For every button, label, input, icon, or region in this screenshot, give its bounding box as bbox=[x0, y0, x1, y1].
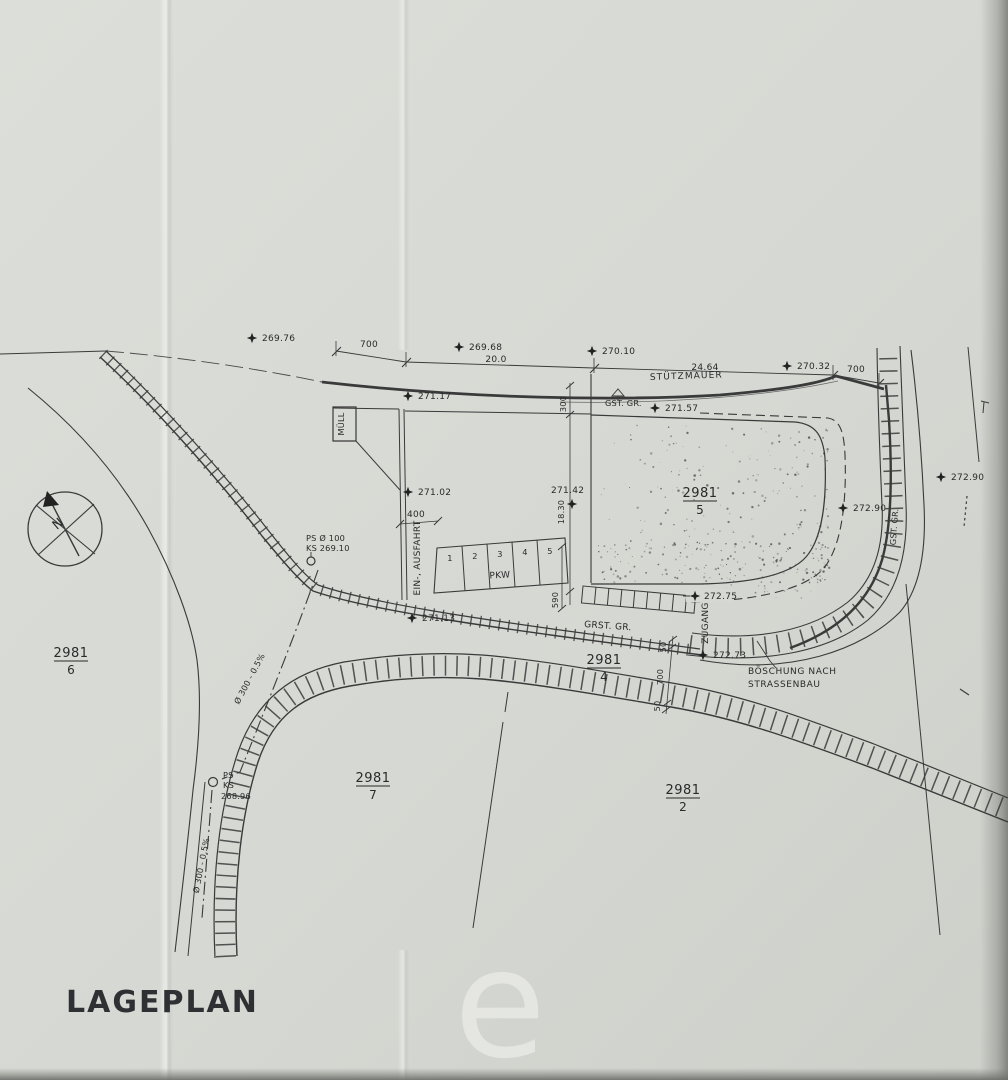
elevation-label: 271.42 bbox=[551, 486, 584, 496]
paper-crease-bottom bbox=[398, 950, 412, 1080]
svg-text:2981: 2981 bbox=[586, 653, 621, 668]
elevation-label: 272.75 bbox=[704, 592, 737, 602]
dimension-label: 700 bbox=[360, 340, 378, 350]
dimension-label: 18.30 bbox=[556, 500, 566, 524]
paper-crease-left bbox=[160, 0, 176, 1080]
svg-text:2981: 2981 bbox=[665, 783, 700, 798]
svg-text:4: 4 bbox=[600, 670, 608, 684]
svg-text:268.96: 268.96 bbox=[221, 791, 251, 801]
site-plan-drawing: 269.76 269.68 270.10 270.32 271.17 271.5… bbox=[0, 0, 1008, 1080]
stall-number: 1 bbox=[447, 553, 452, 563]
elevation-label: 272.90 bbox=[951, 473, 984, 483]
svg-text:7: 7 bbox=[369, 788, 377, 802]
dimension-label: 590 bbox=[550, 592, 560, 608]
page-title: LAGEPLAN bbox=[66, 985, 259, 1020]
scanned-site-plan-page: 269.76 269.68 270.10 270.32 271.17 271.5… bbox=[0, 0, 1008, 1080]
stall-number: 2 bbox=[472, 551, 477, 561]
dimension-label: 20.0 bbox=[485, 355, 506, 365]
boeschung-label-1: BÖSCHUNG NACH bbox=[748, 666, 837, 677]
paper-edge-right bbox=[980, 0, 1008, 1080]
svg-text:PS: PS bbox=[223, 770, 234, 780]
dimension-label: 50 bbox=[658, 642, 668, 653]
elevation-label: 271.02 bbox=[418, 488, 451, 498]
svg-text:2981: 2981 bbox=[682, 486, 717, 501]
stall-number: 4 bbox=[522, 547, 527, 557]
elevation-label: 271.57 bbox=[665, 404, 698, 414]
elevation-label: 271.17 bbox=[418, 392, 451, 402]
svg-text:PS Ø 100: PS Ø 100 bbox=[306, 533, 345, 543]
svg-text:2981: 2981 bbox=[355, 771, 390, 786]
elevation-label: 270.32 bbox=[797, 362, 830, 372]
svg-text:6: 6 bbox=[67, 663, 75, 677]
pkw-label: PKW bbox=[489, 570, 510, 581]
svg-text:2: 2 bbox=[679, 800, 687, 814]
paper-crease-top bbox=[398, 0, 412, 350]
svg-text:5: 5 bbox=[696, 503, 704, 517]
dimension-label: 700 bbox=[847, 365, 865, 375]
dimension-label: 50 bbox=[652, 701, 662, 712]
elevation-label: 271.13 bbox=[422, 614, 455, 624]
svg-text:KS: KS bbox=[223, 780, 234, 790]
muell-label: MÜLL bbox=[336, 412, 346, 435]
watermark-letter: e bbox=[454, 918, 546, 1080]
svg-text:2981: 2981 bbox=[53, 646, 88, 661]
svg-text:KS 269.10: KS 269.10 bbox=[306, 543, 350, 553]
elevation-label: 269.68 bbox=[469, 343, 502, 353]
zugang-label: ZUGANG bbox=[701, 602, 711, 643]
survey-point-ps1-label: PS Ø 100 KS 269.10 bbox=[306, 533, 350, 553]
elevation-label: 272.73 bbox=[713, 651, 746, 661]
stall-number: 3 bbox=[497, 549, 502, 559]
dimension-label: 700 bbox=[655, 669, 665, 685]
stall-number: 5 bbox=[547, 546, 552, 556]
elevation-label: 272.90 bbox=[853, 504, 886, 514]
gst-gr-top-label: GST. GR. bbox=[605, 398, 642, 408]
dimension-label: 400 bbox=[407, 510, 425, 520]
ein-ausfahrt-label: EIN-, AUSFAHRT bbox=[413, 520, 423, 595]
elevation-label: 270.10 bbox=[602, 347, 635, 357]
dimension-label: 300 bbox=[558, 396, 568, 412]
elevation-label: 269.76 bbox=[262, 334, 295, 344]
boeschung-label-2: STRASSENBAU bbox=[748, 680, 821, 690]
